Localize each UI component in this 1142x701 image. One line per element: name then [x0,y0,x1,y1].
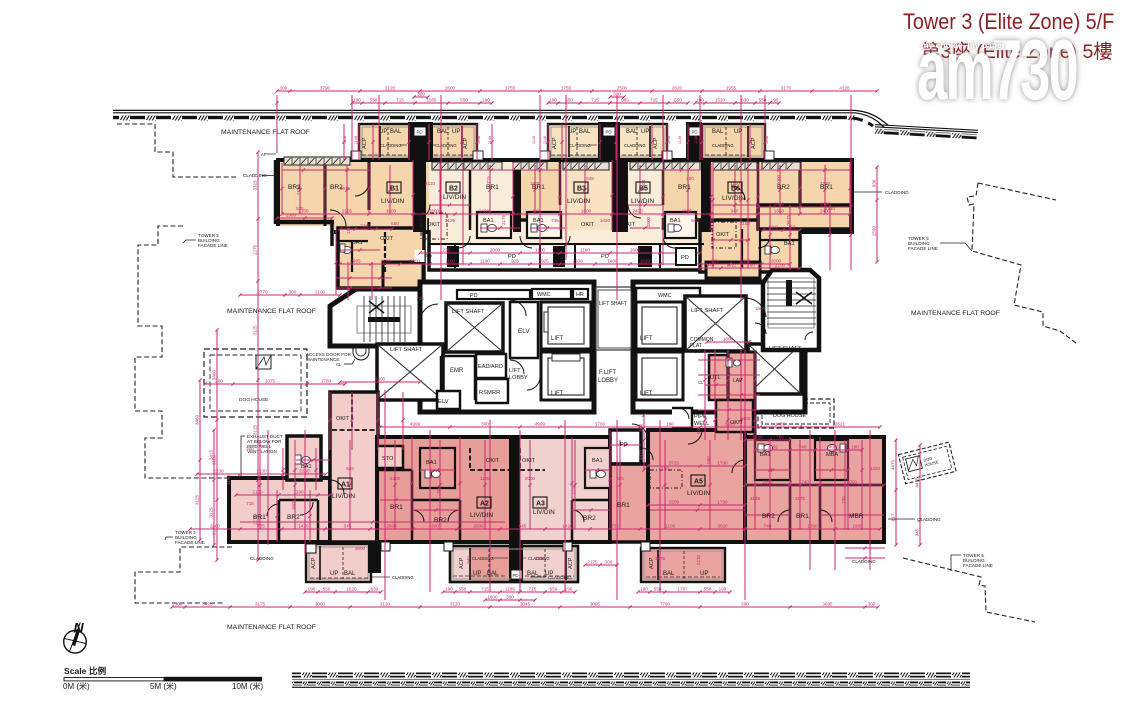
svg-text:4126: 4126 [839,86,850,91]
svg-text:1760: 1760 [595,422,606,427]
svg-text:300: 300 [246,446,254,451]
svg-text:550: 550 [654,587,662,592]
svg-text:UP: UP [452,129,460,135]
svg-text:3790: 3790 [320,86,331,91]
svg-text:LIV/DIN: LIV/DIN [470,512,493,519]
svg-text:1100: 1100 [480,476,490,481]
svg-text:2200: 2200 [572,259,583,264]
svg-text:760: 760 [747,263,755,268]
svg-text:FACADE LINE: FACADE LINE [198,243,228,248]
svg-text:715: 715 [246,501,254,506]
svg-text:A2: A2 [480,501,489,508]
svg-text:2175: 2175 [501,214,506,225]
svg-text:4475: 4475 [639,449,644,460]
svg-text:550: 550 [565,98,573,103]
svg-text:UP: UP [641,129,649,135]
svg-text:UP: UP [734,129,742,135]
svg-text:1880: 1880 [852,524,863,529]
svg-text:BR2: BR2 [777,184,790,191]
svg-text:2905: 2905 [350,259,361,264]
svg-text:LIFT: LIFT [640,336,653,342]
svg-text:817: 817 [891,513,896,521]
svg-text:BR2: BR2 [330,184,343,191]
svg-text:2960: 2960 [286,213,297,218]
svg-text:1190: 1190 [580,248,590,253]
svg-text:190: 190 [851,445,859,450]
svg-text:BA1: BA1 [352,240,363,246]
svg-text:2400: 2400 [479,209,490,214]
svg-text:190: 190 [565,587,573,592]
svg-text:190: 190 [640,587,648,592]
svg-text:CL: CL [336,362,342,367]
svg-text:2375: 2375 [265,379,276,384]
svg-text:F.LIFT: F.LIFT [599,370,616,376]
svg-text:3120: 3120 [380,602,391,607]
svg-text:2100: 2100 [820,202,831,207]
svg-text:OKIT: OKIT [716,232,730,238]
svg-text:1148: 1148 [765,136,769,144]
svg-text:1148: 1148 [532,136,536,144]
svg-text:1400: 1400 [607,259,618,264]
svg-text:ACP: ACP [568,557,574,569]
svg-text:CLADDING: CLADDING [548,575,572,580]
svg-text:PD: PD [508,254,516,260]
svg-text:940: 940 [691,218,699,223]
svg-text:645: 645 [346,466,354,471]
svg-text:A3: A3 [536,501,545,508]
svg-text:1100: 1100 [226,475,231,485]
svg-text:OKIT: OKIT [427,222,441,228]
svg-text:715: 715 [396,98,404,103]
svg-text:735: 735 [551,218,559,223]
svg-text:300: 300 [436,486,441,494]
svg-text:550: 550 [370,98,378,103]
svg-text:300: 300 [481,422,489,427]
svg-text:190: 190 [308,587,316,592]
svg-text:MAINTENANCE FLAT ROOF: MAINTENANCE FLAT ROOF [227,624,316,631]
svg-text:DOG HOUSE: DOG HOUSE [239,397,268,403]
svg-text:715: 715 [486,176,491,184]
svg-text:740: 740 [764,524,772,529]
svg-text:2050: 2050 [762,480,773,485]
svg-text:550: 550 [759,98,767,103]
svg-text:PD: PD [417,130,423,135]
svg-text:715: 715 [416,296,424,301]
svg-text:190: 190 [482,98,490,103]
svg-text:550: 550 [674,98,682,103]
svg-text:550: 550 [550,587,558,592]
svg-text:WMC: WMC [658,293,672,299]
svg-text:BAL: BAL [527,571,539,577]
svg-text:BR1: BR1 [253,514,266,521]
svg-text:BAL: BAL [344,571,356,577]
svg-text:300: 300 [605,560,613,565]
svg-text:LIFT SHAFT: LIFT SHAFT [452,309,485,315]
svg-text:CL: CL [698,380,704,385]
svg-text:ELV: ELV [438,399,449,405]
svg-text:PD: PD [601,254,609,260]
svg-text:1430: 1430 [752,435,763,440]
svg-text:645: 645 [586,176,594,181]
svg-text:2400: 2400 [390,476,401,481]
svg-text:BR1: BR1 [486,184,499,191]
svg-text:7285: 7285 [360,224,371,229]
svg-text:CLADDING: CLADDING [435,143,457,148]
svg-text:300: 300 [417,92,425,97]
svg-text:740: 740 [799,445,807,450]
svg-text:3125: 3125 [195,494,200,505]
svg-text:OKIT: OKIT [522,458,536,464]
svg-text:LAV: LAV [733,378,743,384]
svg-text:1148: 1148 [343,136,347,144]
svg-text:PD: PD [470,293,478,299]
svg-text:760: 760 [788,225,796,230]
svg-text:1148: 1148 [354,136,358,144]
svg-text:1800: 1800 [723,337,734,342]
svg-text:3209: 3209 [669,500,680,505]
svg-text:BA1: BA1 [592,458,603,464]
svg-text:CLADDING: CLADDING [712,143,734,148]
svg-text:3675: 3675 [655,556,666,561]
svg-text:UP: UP [330,571,338,577]
svg-text:CLADDING: CLADDING [917,517,941,522]
svg-text:LIFT: LIFT [509,368,521,374]
svg-text:3095: 3095 [822,602,833,607]
svg-text:735: 735 [841,496,846,504]
svg-text:550: 550 [459,587,467,592]
svg-text:630: 630 [639,423,644,431]
svg-text:300: 300 [686,176,694,181]
svg-text:1800: 1800 [291,499,296,510]
svg-text:OKIT: OKIT [622,222,636,228]
svg-text:BAL: BAL [712,129,724,135]
svg-text:1185: 1185 [427,98,437,103]
svg-text:1148: 1148 [543,136,547,144]
svg-text:1955: 1955 [726,86,737,91]
svg-text:3175: 3175 [781,86,792,91]
svg-text:300: 300 [175,602,183,607]
svg-text:4300: 4300 [375,377,386,382]
svg-text:BR1: BR1 [796,513,809,520]
svg-text:A5: A5 [694,479,703,486]
svg-text:1148: 1148 [667,136,671,144]
svg-text:1185: 1185 [505,587,515,592]
svg-text:3460: 3460 [195,414,200,425]
svg-text:ACP: ACP [459,557,465,569]
svg-text:BA1: BA1 [760,452,771,458]
svg-text:1420: 1420 [600,218,611,223]
svg-text:2620: 2620 [672,86,683,91]
svg-text:BR2: BR2 [287,514,300,521]
svg-text:Scale 比例: Scale 比例 [64,665,106,676]
svg-text:300: 300 [613,92,621,97]
svg-text:1100: 1100 [445,259,455,264]
svg-text:940: 940 [731,209,739,214]
svg-text:3175: 3175 [255,602,266,607]
svg-text:CLADDING: CLADDING [472,556,494,561]
svg-text:PIPE: PIPE [694,414,707,420]
svg-text:1220: 1220 [380,259,391,264]
svg-text:LIFT SHAFT: LIFT SHAFT [769,346,802,352]
svg-text:BA1: BA1 [483,218,494,224]
svg-text:2175: 2175 [212,524,217,535]
svg-text:2590: 2590 [872,225,877,236]
svg-text:930: 930 [872,179,877,187]
svg-text:735: 735 [611,524,619,529]
svg-text:1022: 1022 [726,263,737,268]
svg-text:1800: 1800 [755,306,766,311]
svg-text:945: 945 [915,528,920,536]
svg-text:1360: 1360 [807,524,818,529]
svg-text:5M (米): 5M (米) [150,681,177,691]
svg-text:190: 190 [696,98,704,103]
svg-text:MAINTENANCE FLAT ROOF: MAINTENANCE FLAT ROOF [221,129,310,136]
svg-text:645: 645 [344,524,352,529]
svg-text:HR: HR [576,292,584,298]
svg-text:B6: B6 [731,186,740,193]
svg-text:A1: A1 [341,482,350,489]
svg-text:1520: 1520 [715,98,726,103]
svg-text:735: 735 [257,524,265,529]
svg-text:1850: 1850 [682,209,693,214]
svg-text:2100: 2100 [315,290,326,295]
svg-text:PD: PD [424,254,432,260]
svg-text:PD: PD [606,130,612,135]
svg-text:1190: 1190 [480,259,490,264]
svg-text:550: 550 [706,456,711,464]
svg-text:LIV/DIN: LIV/DIN [687,490,710,497]
svg-text:0M (米): 0M (米) [63,681,90,691]
svg-text:2000: 2000 [490,248,501,253]
svg-text:LOBBY: LOBBY [509,375,528,381]
svg-text:190: 190 [719,587,727,592]
svg-text:LIFT SHAFT: LIFT SHAFT [390,347,423,353]
svg-text:2265: 2265 [767,445,778,450]
svg-text:MAINTENANCE FLAT ROOF: MAINTENANCE FLAT ROOF [911,310,1000,317]
svg-text:EMR: EMR [450,368,464,374]
svg-text:1520: 1520 [346,587,357,592]
svg-text:550: 550 [460,98,468,103]
svg-text:ACP: ACP [751,137,757,149]
svg-text:LIV/DIN: LIV/DIN [722,195,745,202]
svg-text:LIFT: LIFT [551,391,564,397]
svg-text:B2: B2 [449,186,458,193]
svg-text:MBA: MBA [826,452,838,458]
svg-text:ACP: ACP [311,557,317,569]
svg-text:550: 550 [323,587,331,592]
svg-text:BR2: BR2 [434,517,447,524]
svg-text:BAL: BAL [390,129,402,135]
svg-text:3323: 3323 [253,180,258,191]
svg-text:OKIT: OKIT [336,416,350,422]
svg-text:ACP: ACP [362,137,368,149]
svg-text:STO: STO [382,456,394,462]
svg-text:2275: 2275 [253,244,258,255]
svg-text:UP: UP [568,129,576,135]
svg-text:ACP: ACP [463,137,469,149]
svg-text:715: 715 [591,98,599,103]
svg-text:1800: 1800 [581,209,592,214]
svg-text:CLADDING: CLADDING [852,559,876,564]
svg-text:925: 925 [541,259,549,264]
svg-text:300: 300 [280,86,288,91]
svg-text:715: 715 [481,587,489,592]
svg-text:WELL: WELL [694,421,709,427]
svg-text:300: 300 [741,602,749,607]
svg-text:3120: 3120 [450,602,461,607]
svg-text:MAINTENANCE: MAINTENANCE [306,357,339,362]
svg-text:1485: 1485 [775,422,786,427]
svg-text:PD: PD [681,255,689,261]
svg-text:3125: 3125 [445,218,456,223]
svg-text:985: 985 [621,98,629,103]
svg-text:2000: 2000 [525,476,536,481]
svg-text:CLADDING: CLADDING [380,143,402,148]
svg-text:2500: 2500 [386,524,397,529]
svg-text:1420: 1420 [562,524,573,529]
svg-text:BA1: BA1 [301,464,312,470]
svg-text:FACADE LINE: FACADE LINE [175,540,205,545]
svg-text:4999: 4999 [535,422,546,427]
svg-text:1800: 1800 [487,595,498,600]
svg-text:UP: UP [379,129,387,135]
svg-text:1148: 1148 [488,136,492,144]
svg-text:OKIT: OKIT [581,222,595,228]
svg-text:MAINTENANCE FLAT ROOF: MAINTENANCE FLAT ROOF [227,308,316,315]
svg-text:2400: 2400 [826,445,837,450]
svg-text:190: 190 [661,466,669,471]
svg-text:1790: 1790 [717,500,728,505]
svg-text:300: 300 [868,602,876,607]
svg-text:3125: 3125 [212,454,217,465]
svg-text:3460: 3460 [212,369,217,380]
svg-text:1420: 1420 [870,466,881,471]
svg-text:2100: 2100 [775,263,786,268]
svg-text:LIV/DIN: LIV/DIN [631,198,654,205]
svg-text:BR1: BR1 [820,184,833,191]
svg-text:3080: 3080 [315,602,326,607]
svg-text:2230: 2230 [213,469,224,474]
svg-text:ACP: ACP [653,137,659,149]
svg-text:190: 190 [353,98,361,103]
svg-text:2800: 2800 [646,216,651,227]
svg-text:2120: 2120 [385,86,396,91]
svg-text:WMC: WMC [537,292,551,298]
svg-text:CLADDING: CLADDING [624,143,646,148]
svg-text:BA1: BA1 [670,218,681,224]
svg-text:630: 630 [371,587,379,592]
svg-text:1787: 1787 [677,587,688,592]
svg-text:1600: 1600 [386,209,397,214]
svg-text:2800: 2800 [355,546,366,551]
svg-text:2175: 2175 [587,560,598,565]
svg-text:10M (米): 10M (米) [232,681,263,691]
svg-text:BR1: BR1 [390,504,403,511]
svg-text:1020: 1020 [640,259,651,264]
svg-text:BAL: BAL [579,129,591,135]
svg-text:940: 940 [466,556,471,564]
svg-text:EAD/ARD: EAD/ARD [478,364,503,370]
svg-text:715: 715 [650,98,658,103]
svg-text:2621: 2621 [835,422,846,427]
svg-text:925: 925 [616,476,624,481]
svg-text:190: 190 [771,98,779,103]
svg-text:2400: 2400 [774,202,785,207]
svg-text:2770: 2770 [257,290,268,295]
svg-text:2100: 2100 [252,490,263,495]
svg-text:CLADDING: CLADDING [885,190,909,195]
svg-text:B1: B1 [390,186,399,193]
svg-text:1220: 1220 [571,484,576,495]
svg-text:740: 740 [801,480,809,485]
svg-text:2600: 2600 [445,86,456,91]
svg-text:CLADDING: CLADDING [392,575,414,580]
svg-text:1755: 1755 [561,86,572,91]
svg-text:LIV/DIN: LIV/DIN [332,493,355,500]
svg-text:UP: UP [700,571,708,577]
svg-text:645: 645 [519,524,527,529]
svg-text:LIFT: LIFT [551,336,564,342]
svg-text:4999: 4999 [410,422,421,427]
svg-text:2110: 2110 [425,181,435,186]
svg-text:LIV/DIN: LIV/DIN [533,509,555,516]
svg-text:550: 550 [391,221,399,226]
svg-text:N: N [74,620,85,636]
svg-text:2175: 2175 [795,496,806,501]
svg-text:1220: 1220 [440,248,451,253]
svg-text:3095: 3095 [590,602,601,607]
svg-text:300: 300 [506,595,514,600]
svg-text:LOBBY: LOBBY [598,378,618,384]
svg-text:BAL: BAL [437,129,449,135]
svg-text:190: 190 [445,587,453,592]
svg-text:ACP: ACP [552,137,558,149]
svg-text:760: 760 [776,435,784,440]
svg-text:2150: 2150 [740,221,751,226]
svg-text:FACADE LINE: FACADE LINE [963,563,993,568]
svg-text:OKIT: OKIT [730,420,744,426]
svg-text:LIV/DIN: LIV/DIN [443,194,466,201]
svg-text:2050: 2050 [847,480,858,485]
svg-text:BA1: BA1 [426,460,437,466]
svg-text:ELV: ELV [518,328,530,335]
svg-text:BAL: BAL [663,571,675,577]
svg-text:190: 190 [666,422,674,427]
svg-text:MBR: MBR [849,513,864,520]
svg-text:2110: 2110 [696,555,701,565]
svg-text:715: 715 [529,587,537,592]
svg-text:BR1: BR1 [617,502,630,509]
svg-text:2000: 2000 [410,259,421,264]
svg-text:2100: 2100 [665,524,676,529]
svg-text:1100: 1100 [535,248,545,253]
svg-text:LIV/DIN: LIV/DIN [381,198,404,205]
svg-text:BR2: BR2 [583,515,596,522]
svg-text:3045: 3045 [520,602,531,607]
svg-text:1290: 1290 [293,490,304,495]
svg-text:3725: 3725 [669,461,680,466]
svg-text:PD: PD [692,130,698,135]
svg-text:UTL: UTL [710,375,721,381]
svg-text:B5: B5 [639,186,648,193]
svg-text:2500: 2500 [617,86,628,91]
svg-text:2230: 2230 [256,469,267,474]
svg-text:BA1: BA1 [784,241,795,247]
svg-text:4475: 4475 [915,477,920,488]
svg-text:3125: 3125 [253,325,258,336]
svg-text:300: 300 [431,524,439,529]
svg-text:550: 550 [704,587,712,592]
